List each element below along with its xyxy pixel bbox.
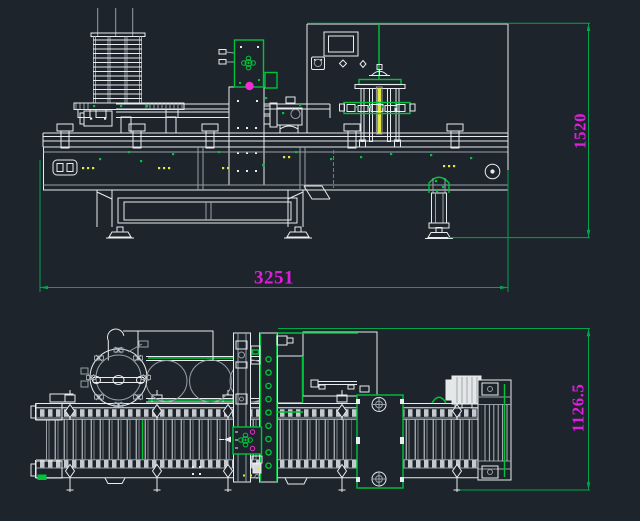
bearing xyxy=(372,472,386,486)
yellow-guide xyxy=(377,88,381,133)
drawing-svg: 3251 1520 1126.5 xyxy=(0,0,640,521)
bearing xyxy=(372,398,386,412)
transfer-plate xyxy=(356,395,404,488)
end-drive-unit xyxy=(478,380,511,480)
cad-canvas: 3251 1520 1126.5 xyxy=(0,0,640,521)
dimension-label-front-height: 1520 xyxy=(571,113,590,149)
green-block xyxy=(38,475,47,481)
dimension-label-front-width: 3251 xyxy=(254,268,294,289)
dimension-label-plan-depth: 1126.5 xyxy=(569,384,588,433)
magenta-marker xyxy=(245,82,253,90)
